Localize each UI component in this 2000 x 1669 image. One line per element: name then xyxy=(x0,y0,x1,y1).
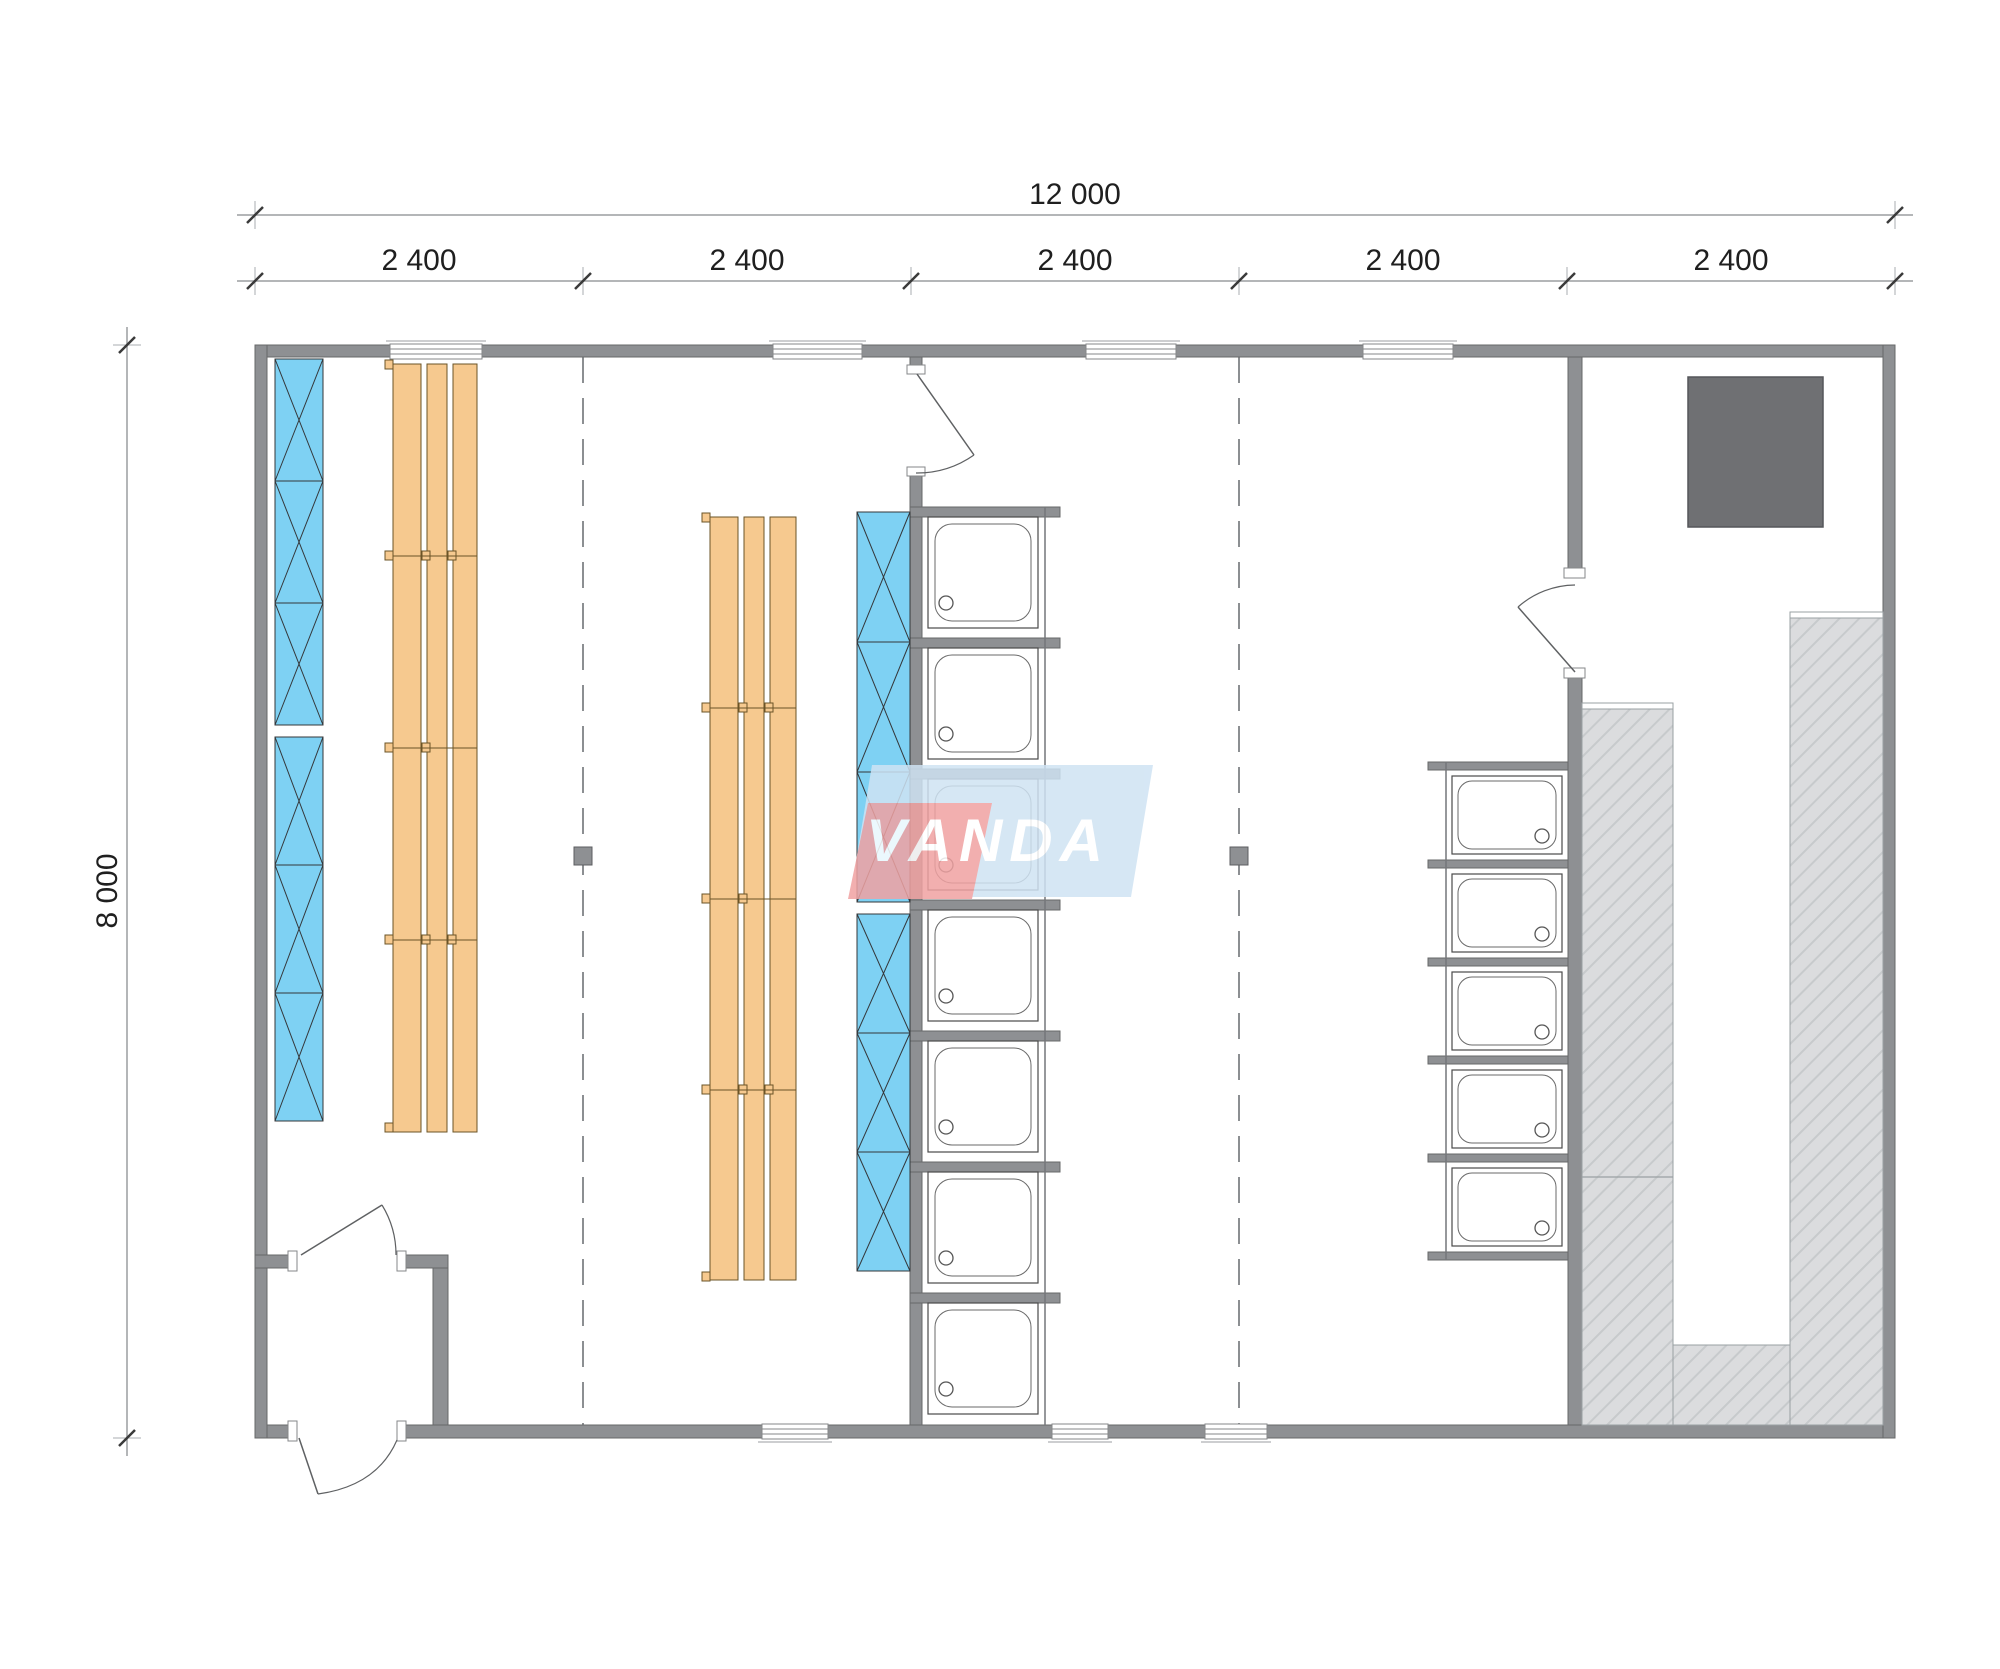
shower-partition xyxy=(910,900,1060,910)
sauna-wall-top xyxy=(1568,357,1582,568)
drain-icon xyxy=(939,596,953,610)
logo-text: VANDA xyxy=(866,807,1110,874)
door-leaf xyxy=(1518,607,1575,672)
outer-wall-left xyxy=(255,345,267,1438)
drain-icon xyxy=(1535,1123,1549,1137)
shower-partition xyxy=(1428,762,1568,770)
window xyxy=(769,341,866,359)
dim-height-label: 8 000 xyxy=(91,853,124,928)
vestibule-wall-right xyxy=(433,1268,448,1425)
window xyxy=(386,341,486,359)
dimension-bays: 2 400 2 400 2 400 2 400 2 400 xyxy=(237,244,1913,295)
bench-tab xyxy=(702,1085,710,1094)
door-arc xyxy=(1518,585,1575,607)
bench-tab xyxy=(385,743,393,752)
door-jamb xyxy=(397,1421,406,1441)
door-arc xyxy=(318,1440,397,1494)
bench-tab xyxy=(702,894,710,903)
locker-box xyxy=(275,993,323,1121)
door-opening xyxy=(297,1424,397,1439)
sauna-heater xyxy=(1688,377,1823,527)
sauna-bench-left xyxy=(1582,708,1673,1425)
locker-box xyxy=(275,359,323,481)
sauna-bench-edge xyxy=(1582,703,1673,709)
dimension-height: 8 000 xyxy=(91,327,141,1456)
drain-icon xyxy=(939,989,953,1003)
shower-tray xyxy=(1452,972,1562,1050)
floor-plan-page: 12 000 2 400 2 400 2 400 2 400 2 400 8 0… xyxy=(0,0,2000,1669)
shower-wall-stub xyxy=(910,357,922,365)
shower-tray xyxy=(928,517,1038,628)
bench-run-middle xyxy=(702,513,796,1281)
drain-icon xyxy=(939,1120,953,1134)
dim-bay-label-5: 2 400 xyxy=(1693,244,1768,277)
outer-wall-right xyxy=(1883,345,1895,1438)
shower-tray xyxy=(928,910,1038,1021)
drain-icon xyxy=(939,1382,953,1396)
door-leaf xyxy=(301,1205,382,1255)
bench-tab xyxy=(702,513,710,522)
shower-tray xyxy=(928,1303,1038,1414)
drain-icon xyxy=(1535,927,1549,941)
shower-partition xyxy=(910,638,1060,648)
dim-bay-label-2: 2 400 xyxy=(709,244,784,277)
shower-partition xyxy=(1428,1252,1568,1260)
window xyxy=(1359,341,1457,359)
dim-bay-label-4: 2 400 xyxy=(1365,244,1440,277)
bench-run-left xyxy=(385,360,477,1132)
door-jamb xyxy=(1564,568,1585,578)
bench-tab xyxy=(385,551,393,560)
door-jamb xyxy=(288,1421,297,1441)
locker-box xyxy=(275,865,323,993)
floor-plan-svg: 12 000 2 400 2 400 2 400 2 400 2 400 8 0… xyxy=(0,0,2000,1669)
shower-partition xyxy=(910,1162,1060,1172)
shower-partition xyxy=(1428,860,1568,868)
drain-icon xyxy=(939,1251,953,1265)
sauna-bench-bottom xyxy=(1673,1345,1790,1425)
shower-column-right xyxy=(1452,776,1562,1246)
sauna-bench-edge xyxy=(1790,612,1883,618)
shower-column-middle xyxy=(928,517,1038,1414)
shower-partition xyxy=(910,1293,1060,1303)
window xyxy=(758,1424,832,1442)
window xyxy=(1201,1424,1271,1442)
shower-partition xyxy=(910,1031,1060,1041)
locker-box xyxy=(857,642,910,772)
locker-box xyxy=(275,603,323,725)
sauna-wall-main xyxy=(1568,678,1582,1425)
shower-tray xyxy=(1452,1168,1562,1246)
locker-box xyxy=(857,914,910,1033)
bench-tab xyxy=(385,1123,393,1132)
shower-partition xyxy=(1428,1154,1568,1162)
shower-tray xyxy=(928,1041,1038,1152)
shower-tray xyxy=(1452,874,1562,952)
door-leaf xyxy=(917,374,974,455)
drain-icon xyxy=(1535,829,1549,843)
door-leaf xyxy=(299,1438,318,1494)
drain-icon xyxy=(939,727,953,741)
door-entrance xyxy=(288,1421,406,1494)
door-jamb xyxy=(288,1251,297,1271)
dimension-overall-width: 12 000 xyxy=(237,178,1913,229)
bench-tab xyxy=(702,1272,710,1281)
outer-wall-top xyxy=(255,345,1895,357)
shower-partition xyxy=(1428,1056,1568,1064)
shower-partition xyxy=(1428,958,1568,966)
bench-tab xyxy=(385,935,393,944)
shower-tray xyxy=(928,1172,1038,1283)
window xyxy=(1082,341,1180,359)
shower-wall-middle xyxy=(910,476,922,1425)
shower-tray xyxy=(1452,1070,1562,1148)
locker-box xyxy=(857,1033,910,1152)
drain-icon xyxy=(1535,1221,1549,1235)
window xyxy=(1048,1424,1112,1442)
shower-partition xyxy=(910,507,1060,517)
door-jamb xyxy=(1564,668,1585,678)
door-middle xyxy=(907,365,974,476)
locker-box xyxy=(275,481,323,603)
bench-tab xyxy=(385,360,393,369)
sauna-bench-right xyxy=(1790,617,1883,1425)
door-jamb xyxy=(907,467,925,476)
sauna-room xyxy=(1582,377,1883,1425)
dim-total-width-label: 12 000 xyxy=(1029,178,1121,211)
drain-icon xyxy=(1535,1025,1549,1039)
shower-tray xyxy=(928,648,1038,759)
vanda-logo: VANDA xyxy=(848,765,1153,899)
bench-tab xyxy=(702,703,710,712)
door-opening xyxy=(297,1254,397,1269)
door-arc xyxy=(382,1205,396,1255)
column-post-right xyxy=(1230,847,1248,865)
column-post-left xyxy=(574,847,592,865)
door-jamb xyxy=(397,1251,406,1271)
door-jamb xyxy=(907,365,925,374)
locker-strip-left xyxy=(275,359,323,1121)
door-vestibule xyxy=(288,1205,406,1271)
locker-box xyxy=(857,512,910,642)
locker-box xyxy=(857,1152,910,1271)
dim-bay-label-1: 2 400 xyxy=(381,244,456,277)
door-sauna xyxy=(1518,568,1585,678)
locker-box xyxy=(275,737,323,865)
dim-bay-label-3: 2 400 xyxy=(1037,244,1112,277)
shower-tray xyxy=(1452,776,1562,854)
